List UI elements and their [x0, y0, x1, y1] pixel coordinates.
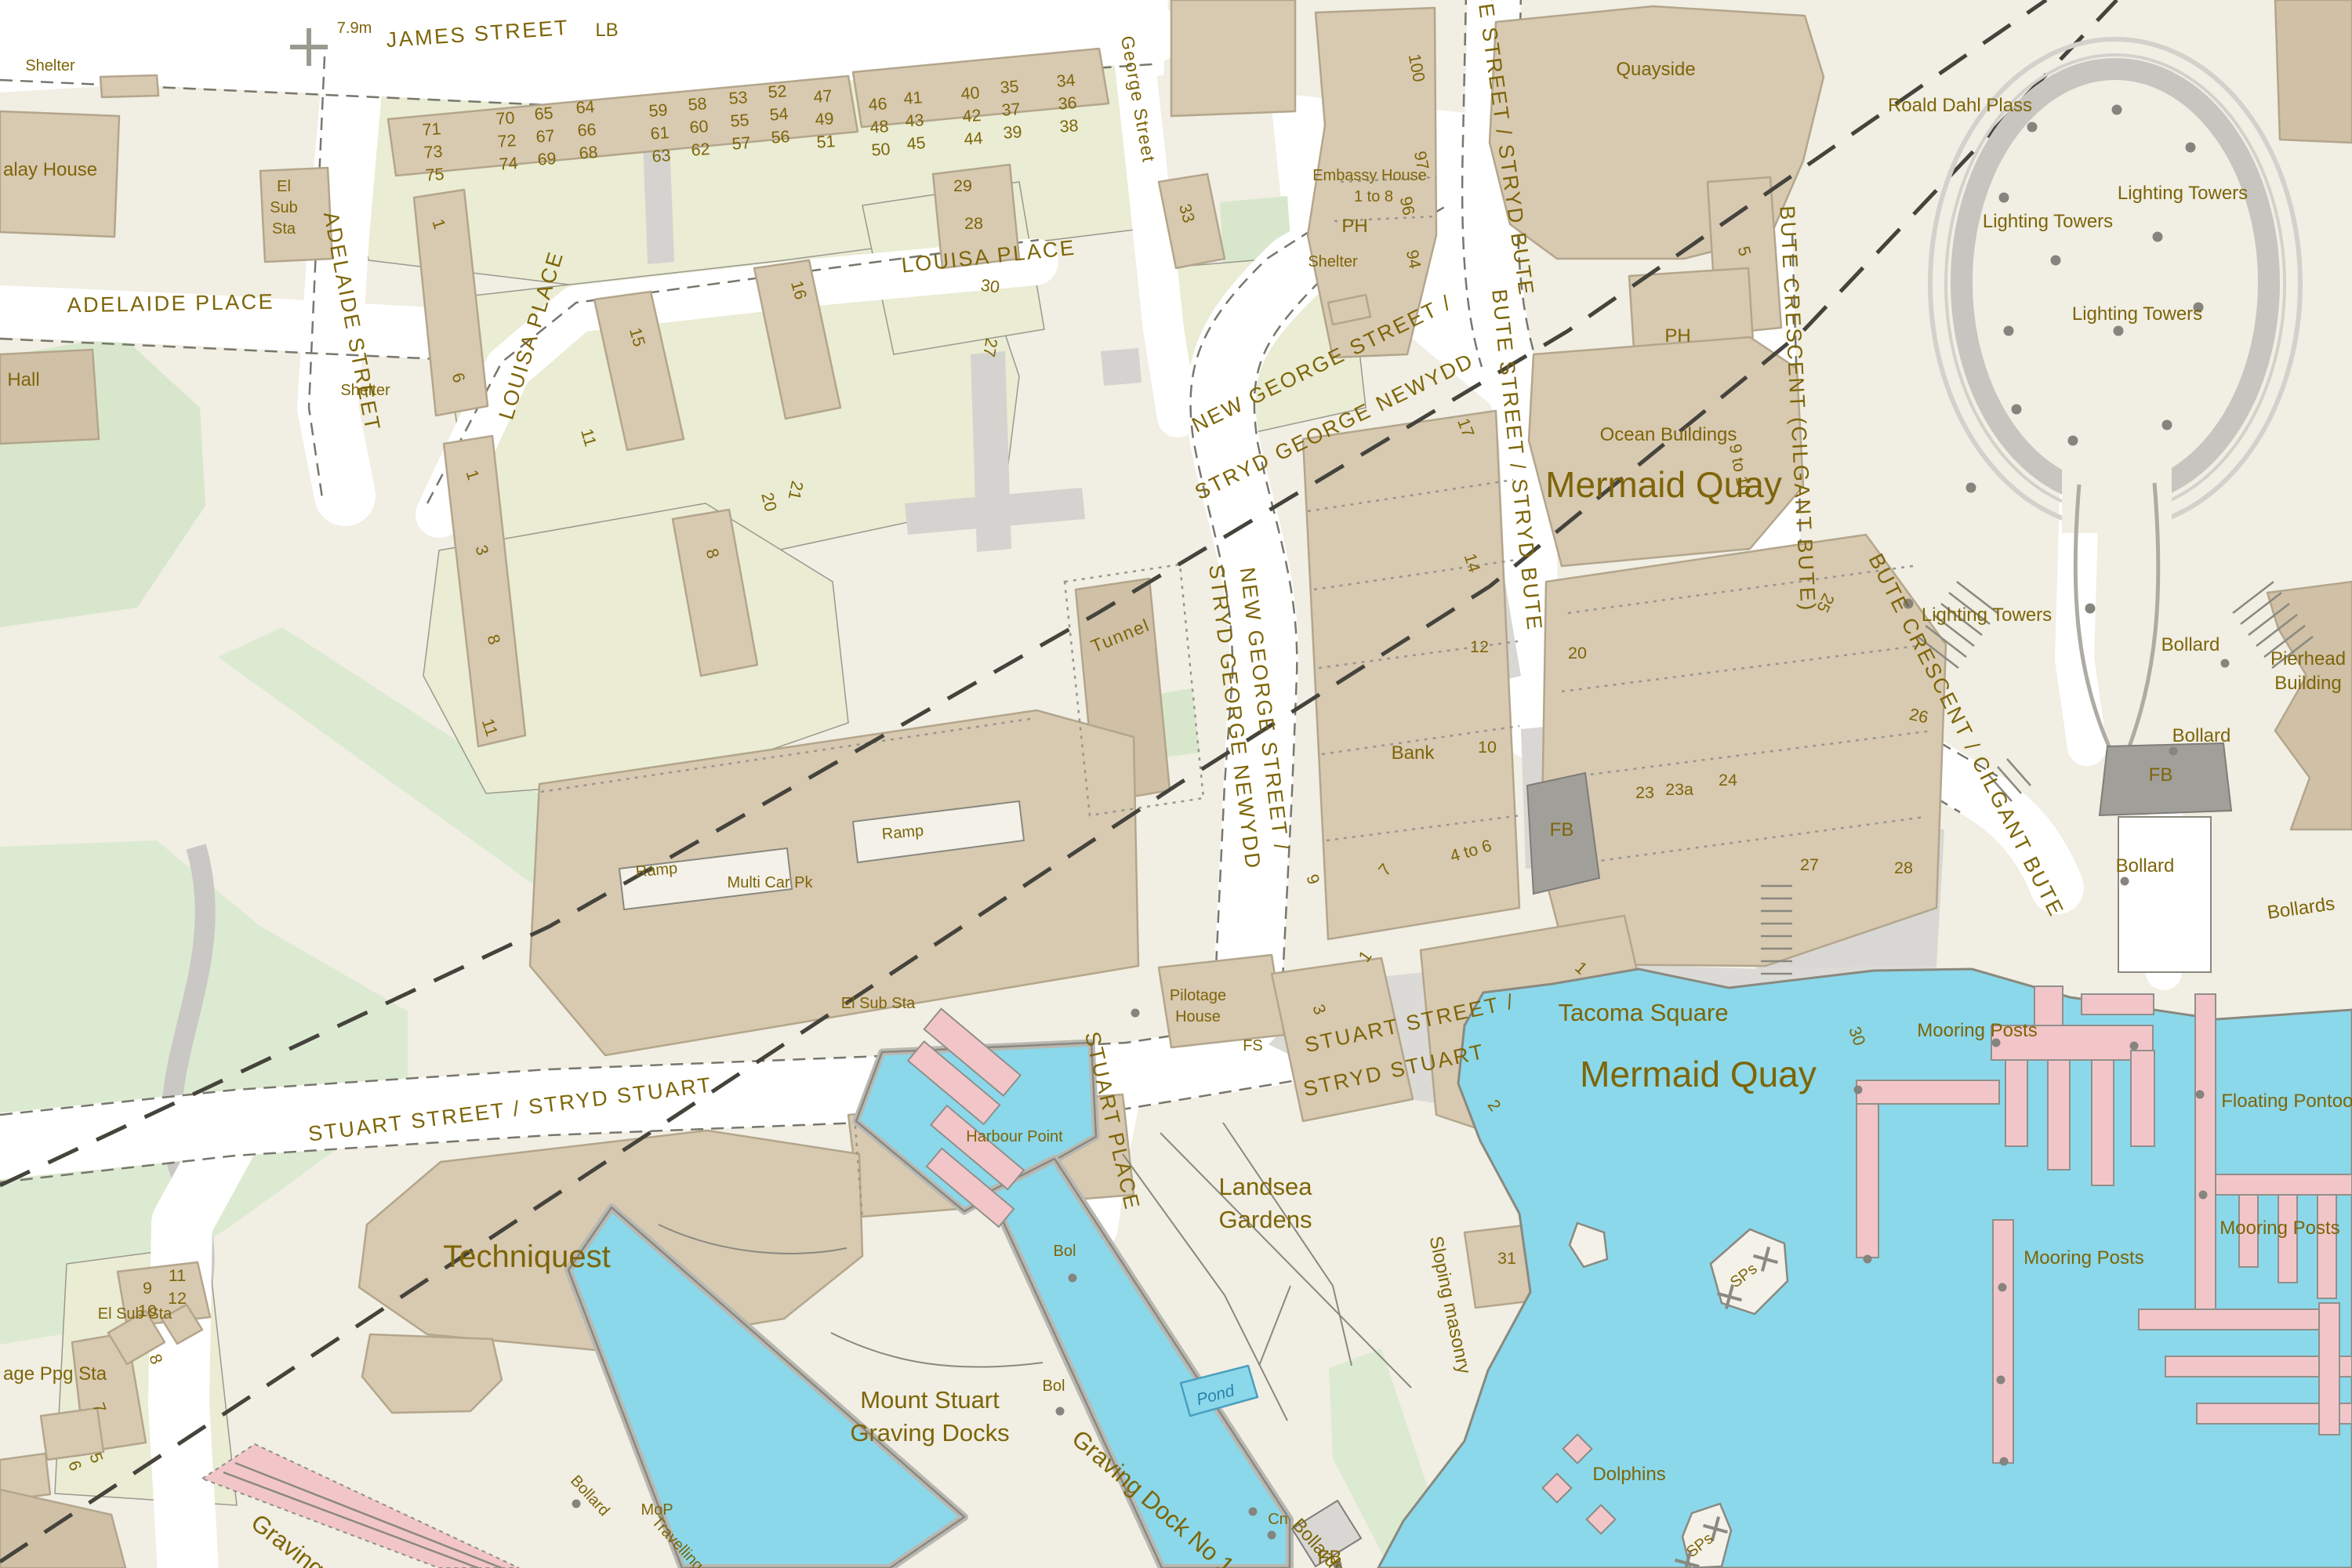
lighting-dot	[2114, 326, 2124, 336]
label-dolphins: Dolphins	[1592, 1464, 1665, 1485]
mooring-dot	[1997, 1376, 2005, 1385]
label-lb: LB	[595, 20, 618, 41]
bollard-dot	[1131, 1009, 1140, 1018]
label-lighting-towers-4: Lighting Towers	[1922, 604, 2052, 626]
lighting-dot	[2186, 143, 2196, 153]
num-28b: 28	[1894, 858, 1913, 877]
label-bank: Bank	[1392, 742, 1436, 764]
label-el-sub-sta-2: El Sub Sta	[841, 995, 916, 1012]
bollard-dot	[1069, 1274, 1077, 1283]
label-bol-2: Bol	[1043, 1377, 1065, 1395]
bollard-dot	[1249, 1508, 1258, 1516]
label-floating-pontoons: Floating Pontoons	[2221, 1091, 2352, 1112]
label-sewage-ppg-sta: age Ppg Sta	[3, 1363, 107, 1385]
mooring-dot	[2000, 1457, 2009, 1466]
num-30-louisa: 30	[979, 276, 1000, 297]
mooring-dot	[2130, 1042, 2139, 1051]
label-lighting-towers-3: Lighting Towers	[2072, 303, 2202, 325]
label-quayside: Quayside	[1616, 59, 1695, 80]
building-hall	[0, 350, 99, 444]
mooring-dot	[2196, 1091, 2205, 1099]
label-embassy-house: Embassy House	[1312, 167, 1427, 184]
num-31: 31	[1497, 1249, 1516, 1268]
num-96: 96	[1396, 195, 1418, 217]
bollard-dot	[2169, 747, 2178, 756]
label-mooring-posts-3: Mooring Posts	[2024, 1247, 2143, 1269]
bridge-deck	[2118, 817, 2211, 972]
lighting-dot	[2153, 232, 2163, 242]
num-28: 28	[964, 214, 983, 233]
num-10: 10	[1478, 738, 1497, 757]
label-mooring-posts-1: Mooring Posts	[1917, 1020, 2037, 1041]
label-fs: FS	[1243, 1037, 1263, 1054]
lighting-dot	[2004, 326, 2014, 336]
lighting-dot	[2051, 256, 2061, 266]
label-el-sub-sta-3: El Sub Sta	[98, 1305, 172, 1323]
num-27b: 27	[1800, 855, 1819, 874]
label-lighting-towers-2: Lighting Towers	[1983, 211, 2113, 232]
building-techniquest-pier	[362, 1334, 502, 1413]
mooring-dot	[1864, 1255, 1872, 1264]
building-shelter-hut-2	[100, 75, 158, 97]
bollard-dot	[2121, 877, 2129, 886]
label-fb-3: FB	[1318, 1547, 1342, 1568]
bollard-dot	[2221, 659, 2230, 668]
lighting-dot	[2027, 122, 2038, 132]
num-20b: 20	[1568, 644, 1587, 662]
lighting-dot	[1999, 193, 2009, 203]
building-top-centre	[1171, 0, 1295, 116]
label-shelter-3: Shelter	[1308, 253, 1358, 270]
alley-4	[1101, 348, 1142, 386]
building-strip-west	[1303, 411, 1519, 939]
label-malay-house: alay House	[3, 159, 97, 180]
label-bollard-2: Bollard	[2172, 725, 2231, 746]
num-97: 97	[1410, 150, 1432, 172]
label-fb-2: FB	[1550, 819, 1574, 840]
label-hall: Hall	[7, 369, 39, 390]
street-adelaide-place: ADELAIDE PLACE	[67, 290, 274, 318]
label-lighting-towers-1: Lighting Towers	[2118, 183, 2248, 204]
label-bollard-1: Bollard	[2161, 634, 2220, 655]
label-ocean-buildings: Ocean Buildings	[1600, 424, 1737, 445]
label-ph-1: PH	[1341, 216, 1367, 237]
label-bol-1: Bol	[1054, 1243, 1076, 1260]
lighting-dot	[2162, 420, 2172, 430]
mooring-dot	[1854, 1086, 1863, 1094]
building-ocean-buildings	[1529, 337, 1803, 566]
label-ph-2: PH	[1664, 325, 1690, 347]
num-23: 23	[1635, 783, 1654, 802]
label-embassy-1to8: 1 to 8	[1354, 188, 1393, 205]
num-23a: 23a	[1665, 780, 1693, 799]
label-ramp-2: Ramp	[881, 822, 924, 844]
label-mooring-posts-2: Mooring Posts	[2220, 1218, 2339, 1239]
num-24: 24	[1719, 771, 1737, 789]
lighting-dot	[1966, 483, 1976, 493]
label-shelter-2: Shelter	[340, 382, 390, 399]
num-27-louisa: 27	[979, 336, 1001, 358]
map-svg: JAMES STREETLB7.9mShelteralay HouseElSub…	[0, 0, 2352, 1568]
num-29: 29	[953, 176, 972, 195]
label-spot-height: 7.9m	[337, 20, 372, 37]
label-shelter-1: Shelter	[25, 57, 75, 74]
building-sewage-1	[41, 1408, 103, 1460]
num-12: 12	[1470, 637, 1489, 656]
lighting-dot	[2068, 436, 2078, 446]
label-mermaid-quay-2: Mermaid Quay	[1580, 1054, 1817, 1094]
bollard-dot	[1056, 1407, 1065, 1416]
label-ramp-1: Ramp	[635, 860, 678, 881]
lighting-dot	[2112, 105, 2122, 115]
label-multi-car-pk: Multi Car Pk	[728, 874, 814, 891]
lighting-dot	[2085, 604, 2096, 614]
label-techniquest: Techniquest	[443, 1240, 610, 1274]
num-26: 26	[1907, 705, 1929, 727]
label-roald-dahl-plass: Roald Dahl Plass	[1888, 95, 2032, 116]
mooring-dot	[2199, 1191, 2208, 1200]
bollard-dot	[1268, 1531, 1276, 1540]
label-fb-1: FB	[2149, 764, 2173, 786]
label-cn: Cn	[1268, 1511, 1288, 1528]
label-bollard-3: Bollard	[2116, 855, 2175, 877]
mooring-dot	[1998, 1283, 2007, 1292]
label-harbour-point: Harbour Point	[966, 1128, 1063, 1145]
label-tacoma-square: Tacoma Square	[1558, 999, 1728, 1026]
lighting-dot	[2012, 405, 2022, 415]
num-94: 94	[1403, 249, 1425, 270]
map-canvas[interactable]: JAMES STREETLB7.9mShelteralay HouseElSub…	[0, 0, 2352, 1568]
building-top-right	[2275, 0, 2352, 143]
bollard-dot	[572, 1500, 581, 1508]
num-21: 21	[785, 479, 807, 501]
